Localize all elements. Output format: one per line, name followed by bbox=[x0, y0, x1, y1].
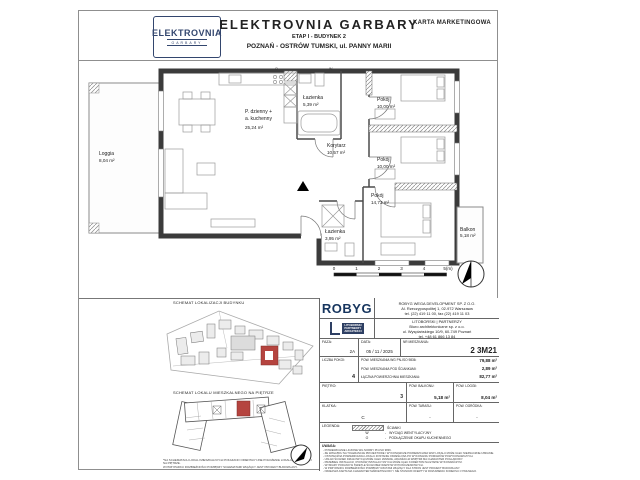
architect-row: LITOBORSKI PARTNERZY ARCHITEKCI LITOBORS… bbox=[320, 319, 499, 339]
title-block: ELEKTROVNIA GARBARY ETAP I - BUDYNEK 2 P… bbox=[199, 17, 439, 50]
klatka-cell: KLATKA: C bbox=[320, 403, 406, 422]
loggia-area: 8,04 m² bbox=[99, 158, 115, 163]
legend-hood-desc: PODŁĄCZENIE OKAPU KUCHENNEGO bbox=[389, 436, 451, 440]
pow-iso-row: POW. MIESZKANIA WG PN-ISO 9836: 79,88 m² bbox=[359, 357, 500, 365]
legend-title: LEGENDA: bbox=[322, 424, 340, 428]
pow-loggii-label: POW. LOGGII: bbox=[456, 384, 477, 388]
scale-bar: 0 1 2 3 4 5(m) bbox=[333, 266, 453, 276]
uwaga-lines: - POWIERZCHNIE LICZONE WG NORMY PN-ISO 9… bbox=[323, 449, 497, 474]
pow-balkonu-value: 5,18 m² bbox=[434, 395, 450, 400]
data-cell: DATA: 05 / 11 / 2025 bbox=[358, 339, 400, 356]
walls-hatch-swatch bbox=[352, 425, 384, 431]
architect-logo-glyph bbox=[330, 322, 340, 335]
pow-balkonu-label: POW. BALKONU: bbox=[409, 384, 434, 388]
faza-label: FAZA: bbox=[322, 340, 332, 344]
liczba-pokoi-cell: LICZBA POKOI: 4 bbox=[320, 357, 358, 382]
floor-schematic-label: SCHEMAT LOKALU MIESZKALNEGO NA PIĘTRZE bbox=[173, 390, 274, 395]
legend-items: ŚCIANKI W - WYCIĄG WENTYLACYJNY O - PODŁ… bbox=[352, 425, 451, 441]
legend-vent-desc: WYCIĄG WENTYLACYJNY bbox=[389, 431, 431, 435]
floor-plan: P. dzienny + a. kuchenny 25,24 m² Łazien… bbox=[79, 61, 499, 298]
developer-phone: tel. (22) 419 11 00, fax (22) 419 11 03 bbox=[405, 311, 470, 316]
pow-laczna-value: 82,77 m² bbox=[479, 374, 497, 379]
room2-area: 10,00 m² bbox=[377, 164, 396, 169]
uwaga-row: UWAGA: - POWIERZCHNIE LICZONE WG NORMY P… bbox=[320, 443, 499, 471]
robyg-logo: ROBYG bbox=[320, 298, 374, 318]
pietro-value: 3 bbox=[400, 394, 403, 400]
liczba-pokoi-label: LICZBA POKOI: bbox=[322, 358, 345, 362]
bathroom1-area: 5,39 m² bbox=[303, 102, 319, 107]
liczba-pokoi-value: 4 bbox=[352, 374, 355, 380]
pow-laczna-label: ŁĄCZNA POWIERZCHNIA MIESZKANIA: bbox=[361, 375, 420, 379]
pow-scianki-label: POW. MIESZKANIA POD ŚCIANKAMI: bbox=[361, 367, 416, 371]
klatka-label: KLATKA: bbox=[322, 404, 337, 408]
legend-vent-symbol: W bbox=[352, 431, 382, 435]
pow-ogrodka-value: - bbox=[454, 415, 500, 420]
scale-tick-4: 4 bbox=[423, 266, 426, 271]
balcony-area: 5,18 m² bbox=[460, 233, 476, 238]
pow-loggii-value: 8,04 m² bbox=[481, 395, 497, 400]
header: ELEKTROVNIA GARBARY ELEKTROVNIA GARBARY … bbox=[79, 11, 497, 61]
card-type-label: KARTA MARKETINGOWA bbox=[413, 20, 491, 26]
room2-label: Pokój bbox=[377, 157, 390, 163]
uwaga-title: UWAGA: bbox=[322, 444, 336, 448]
living-room-label2: a. kuchenny bbox=[245, 116, 272, 122]
site-buildings bbox=[176, 320, 303, 374]
corridor-area: 10,57 m² bbox=[327, 150, 346, 155]
pow-tarasu-value: - bbox=[407, 415, 453, 420]
pow-tarasu-cell: POW. TARASU: - bbox=[406, 403, 453, 422]
bathroom1-label: Łazienka bbox=[303, 95, 323, 101]
room1-label: Pokój bbox=[377, 97, 390, 103]
marketing-card: ELEKTROVNIA GARBARY ELEKTROVNIA GARBARY … bbox=[78, 10, 498, 470]
north-arrow-small-icon bbox=[289, 443, 313, 467]
nr-mieszkania-label: NR MIESZKANIA: bbox=[403, 340, 429, 344]
pow-scianki-row: POW. MIESZKANIA POD ŚCIANKAMI: 2,89 m² bbox=[359, 365, 500, 373]
scale-tick-3: 3 bbox=[400, 266, 403, 271]
pietro-label: PIĘTRO: bbox=[322, 384, 336, 388]
faza-cell: FAZA: 2A bbox=[320, 339, 358, 356]
data-label: DATA: bbox=[361, 340, 371, 344]
pow-ogrodka-label: POW. OGRÓDKA: bbox=[456, 404, 482, 408]
legend-hood-line: O - PODŁĄCZENIE OKAPU KUCHENNEGO bbox=[352, 436, 451, 441]
legend-row: LEGENDA: ŚCIANKI W - WYCIĄG WENTYLACYJNY… bbox=[320, 423, 499, 443]
scale-tick-2: 2 bbox=[378, 266, 381, 271]
architect-phone: tel. +48 61 866 13 84 bbox=[419, 334, 456, 339]
rooms-areas-row: LICZBA POKOI: 4 POW. MIESZKANIA WG PN-IS… bbox=[320, 357, 499, 383]
scale-tick-5: 5(m) bbox=[443, 266, 453, 271]
pow-iso-label: POW. MIESZKANIA WG PN-ISO 9836: bbox=[361, 358, 416, 362]
vent-marker: W bbox=[329, 67, 333, 71]
loggia-label: Loggia bbox=[99, 151, 114, 157]
bedroom-area: 14,73 m² bbox=[371, 200, 390, 205]
pow-scianki-value: 2,89 m² bbox=[482, 366, 497, 371]
room1-area: 10,00 m² bbox=[377, 104, 396, 109]
staircase-terrace-garden-row: KLATKA: C POW. TARASU: - POW. OGRÓDKA: - bbox=[320, 403, 499, 423]
phase-date-number-row: FAZA: 2A DATA: 05 / 11 / 2025 NR MIESZKA… bbox=[320, 339, 499, 357]
legend-hood-symbol: O bbox=[352, 436, 382, 440]
north-arrow-icon bbox=[458, 261, 484, 287]
address-subtitle: POZNAŃ - OSTRÓW TUMSKI, ul. PANNY MARII bbox=[199, 43, 439, 50]
pow-tarasu-label: POW. TARASU: bbox=[409, 404, 432, 408]
info-table: ROBYG ROBYG WEGA DEVELOPMENT SP. Z O.O. … bbox=[319, 298, 499, 471]
faza-value: 2A bbox=[350, 349, 355, 354]
pietro-cell: PIĘTRO: 3 bbox=[320, 383, 406, 402]
nr-mieszkania-value: 2 3M21 bbox=[470, 346, 497, 355]
developer-row: ROBYG ROBYG WEGA DEVELOPMENT SP. Z O.O. … bbox=[320, 298, 499, 319]
legend-walls-label: ŚCIANKI bbox=[387, 426, 401, 430]
stage-subtitle: ETAP I - BUDYNEK 2 bbox=[199, 34, 439, 40]
location-schematic-label: SCHEMAT LOKALIZACJI BUDYNKU bbox=[173, 300, 245, 305]
architect-info: LITOBORSKI | PARTNERZY Biuro architekton… bbox=[374, 319, 499, 338]
uwaga-line: - NINIEJSZA KARTA MA CHARAKTER MARKETING… bbox=[323, 470, 497, 473]
living-room-area: 25,24 m² bbox=[245, 125, 264, 130]
scale-tick-1: 1 bbox=[355, 266, 358, 271]
floor-balcony-loggia-row: PIĘTRO: 3 POW. BALKONU: 5,18 m² POW. LOG… bbox=[320, 383, 499, 403]
bathroom2-label: Łazienka bbox=[325, 229, 345, 235]
bedroom-label: Pokój bbox=[371, 193, 384, 199]
pow-balkonu-cell: POW. BALKONU: 5,18 m² bbox=[406, 383, 453, 402]
pow-laczna-row: ŁĄCZNA POWIERZCHNIA MIESZKANIA: 82,77 m² bbox=[359, 374, 500, 382]
architect-logo-line3: ARCHITEKCI bbox=[344, 330, 361, 333]
marketing-card-page: ELEKTROVNIA GARBARY ELEKTROVNIA GARBARY … bbox=[0, 0, 640, 480]
legend-dash1: - bbox=[385, 431, 386, 435]
pow-iso-value: 79,88 m² bbox=[479, 358, 497, 363]
nr-mieszkania-cell: NR MIESZKANIA: 2 3M21 bbox=[400, 339, 500, 356]
site-location-map bbox=[161, 306, 319, 388]
corridor-label: Korytarz bbox=[327, 143, 346, 149]
data-value: 05 / 11 / 2025 bbox=[359, 349, 400, 354]
legend-dash2: - bbox=[385, 436, 386, 440]
areas-cell: POW. MIESZKANIA WG PN-ISO 9836: 79,88 m²… bbox=[358, 357, 500, 382]
pow-loggii-cell: POW. LOGGII: 8,04 m² bbox=[453, 383, 500, 402]
pow-ogrodka-cell: POW. OGRÓDKA: - bbox=[453, 403, 500, 422]
highlighted-unit bbox=[237, 401, 250, 416]
bathroom2-area: 3,95 m² bbox=[325, 236, 341, 241]
architect-logo-text: LITOBORSKI PARTNERZY ARCHITEKCI bbox=[342, 323, 363, 335]
living-room-label: P. dzienny + bbox=[245, 109, 272, 115]
page-title: ELEKTROVNIA GARBARY bbox=[199, 17, 439, 32]
scale-tick-0: 0 bbox=[333, 266, 336, 271]
highlighted-building bbox=[261, 346, 278, 365]
developer-info: ROBYG WEGA DEVELOPMENT SP. Z O.O. Al. Rz… bbox=[374, 298, 499, 318]
architect-logo: LITOBORSKI PARTNERZY ARCHITEKCI bbox=[320, 319, 374, 338]
klatka-value: C bbox=[320, 415, 406, 420]
hood-marker: O bbox=[275, 67, 278, 71]
